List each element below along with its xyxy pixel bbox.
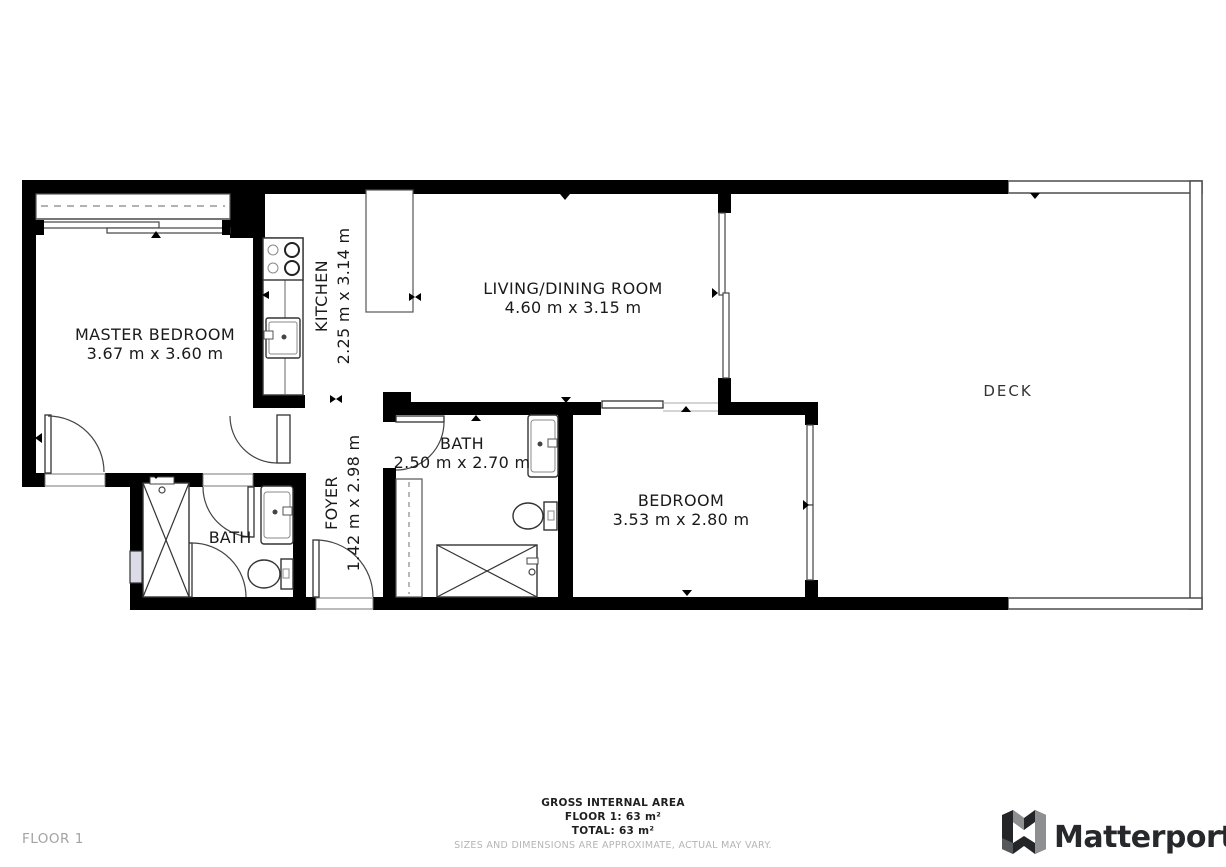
wall-segment xyxy=(130,597,316,610)
deck-wall-right xyxy=(1190,181,1202,609)
toilet-bowl xyxy=(513,503,543,529)
room-name: BATH xyxy=(440,434,484,453)
door-leaf xyxy=(277,415,290,463)
room-name: MASTER BEDROOM xyxy=(75,325,235,344)
room-name: BEDROOM xyxy=(638,491,724,510)
room-name: KITCHEN xyxy=(312,260,331,332)
floorplan-page: MASTER BEDROOM 3.67 m x 3.60 m KITCHEN 2… xyxy=(0,0,1226,867)
room-bedroom: BEDROOM 3.53 m x 2.80 m xyxy=(613,491,750,529)
wall-segment xyxy=(805,580,818,602)
deck-slider-pane xyxy=(719,213,725,295)
wall-segment xyxy=(805,402,818,425)
deck-wall-top xyxy=(1008,181,1202,193)
logo-icon-facet xyxy=(1013,810,1024,830)
living-cabinet xyxy=(366,190,413,312)
room-name: BATH xyxy=(209,528,251,547)
faucet-dot xyxy=(282,335,287,340)
wall-segment xyxy=(253,395,305,408)
toilet-tank xyxy=(544,502,557,530)
room-name: DECK xyxy=(983,382,1032,400)
room-master-bedroom: MASTER BEDROOM 3.67 m x 3.60 m xyxy=(75,325,235,363)
floor-label: FLOOR 1 xyxy=(22,831,84,847)
room-kitchen: KITCHEN 2.25 m x 3.14 m xyxy=(312,228,353,365)
footer: GROSS INTERNAL AREA FLOOR 1: 63 m² TOTAL… xyxy=(22,797,772,851)
room-dims: 2.25 m x 3.14 m xyxy=(334,228,353,365)
wall-segment xyxy=(373,597,1008,610)
wall-segment xyxy=(293,487,306,600)
wall-segment xyxy=(383,468,396,597)
room-dims: 4.60 m x 3.15 m xyxy=(505,298,642,317)
bedroom-window-pane xyxy=(807,425,813,505)
direction-marker xyxy=(1030,193,1040,199)
wall-segment xyxy=(383,413,396,422)
door-arc xyxy=(192,543,246,597)
direction-marker xyxy=(415,293,421,301)
wall-segment xyxy=(558,410,573,597)
window-post xyxy=(222,220,230,235)
wall-segment xyxy=(718,402,814,415)
logo-icon-facet xyxy=(1035,810,1046,854)
toilet-bowl xyxy=(248,560,280,588)
wall-segment xyxy=(22,180,1008,194)
matterport-logo: Matterport xyxy=(1002,810,1226,855)
room-bath-main: BATH 2.50 m x 2.70 m xyxy=(394,434,531,472)
direction-marker xyxy=(330,395,336,403)
wall-segment xyxy=(718,378,731,408)
direction-marker xyxy=(681,406,691,412)
direction-marker xyxy=(35,433,42,443)
wall-segment xyxy=(253,473,306,487)
floor-area-text: FLOOR 1: 63 m² xyxy=(565,811,661,823)
room-dims: 1.42 m x 2.98 m xyxy=(344,435,363,572)
shower-tap xyxy=(527,558,538,564)
window-pane xyxy=(107,228,230,233)
faucet xyxy=(548,439,557,447)
total-area-text: TOTAL: 63 m² xyxy=(572,825,655,837)
bath-window xyxy=(130,551,142,583)
direction-marker xyxy=(336,395,342,403)
gross-internal-area-title: GROSS INTERNAL AREA xyxy=(541,797,685,809)
entry-door-leaf xyxy=(313,540,319,597)
door-leaf xyxy=(45,415,51,473)
logo-text: Matterport xyxy=(1054,820,1226,855)
door-leaf xyxy=(396,416,444,422)
deck-wall-bottom xyxy=(1008,598,1202,609)
direction-marker xyxy=(471,415,481,421)
room-deck: DECK xyxy=(983,382,1032,400)
wall-segment xyxy=(22,473,45,487)
room-living-dining: LIVING/DINING ROOM 4.60 m x 3.15 m xyxy=(483,279,663,317)
room-name: LIVING/DINING ROOM xyxy=(483,279,663,298)
direction-marker xyxy=(682,590,692,596)
wall-segment xyxy=(130,487,143,552)
deck-slider-pane xyxy=(723,293,729,378)
bedroom-window-pane xyxy=(807,505,813,580)
faucet xyxy=(264,331,273,339)
shower-head xyxy=(150,477,174,484)
door-arc xyxy=(48,416,104,472)
faucet xyxy=(283,507,292,515)
entry-threshold xyxy=(316,598,373,609)
direction-marker xyxy=(560,194,570,200)
room-dims: 3.53 m x 2.80 m xyxy=(613,510,750,529)
direction-marker xyxy=(712,288,718,298)
deck-outline xyxy=(1008,181,1202,609)
door-arc xyxy=(230,416,277,463)
room-name: FOYER xyxy=(322,476,341,530)
faucet-dot xyxy=(538,442,543,447)
wall-segment xyxy=(718,180,731,213)
window-pane xyxy=(37,222,159,228)
room-dims: 2.50 m x 2.70 m xyxy=(394,453,531,472)
wall-segment xyxy=(383,392,411,403)
room-bath-ensuite: BATH xyxy=(209,528,251,547)
room-dims: 3.67 m x 3.60 m xyxy=(87,344,224,363)
wall-segment xyxy=(22,180,36,487)
room-foyer: FOYER 1.42 m x 2.98 m xyxy=(322,435,363,572)
floorplan-drawing: MASTER BEDROOM 3.67 m x 3.60 m KITCHEN 2… xyxy=(0,0,1226,867)
matterport-icon xyxy=(1002,810,1046,854)
kitchen-fixtures xyxy=(263,238,303,395)
disclaimer-text: SIZES AND DIMENSIONS ARE APPROXIMATE, AC… xyxy=(454,840,772,851)
door-threshold xyxy=(45,474,105,486)
sliding-door xyxy=(602,401,663,408)
faucet-dot xyxy=(273,510,278,515)
window-post xyxy=(36,220,44,235)
door-threshold xyxy=(203,474,253,486)
